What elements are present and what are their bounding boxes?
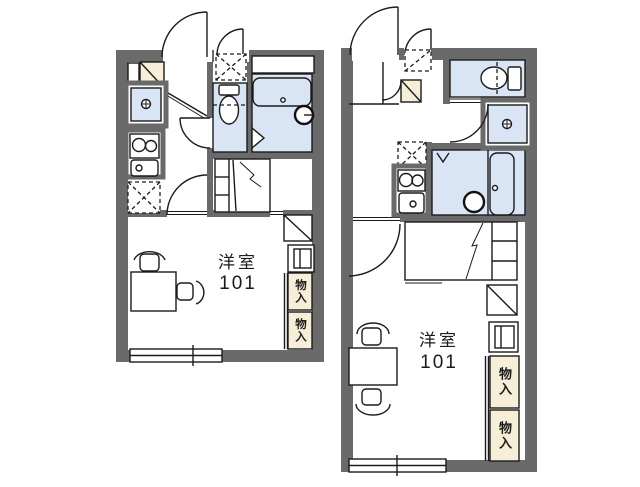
- utility-door-icon: [405, 29, 431, 71]
- left-closet-label-2: 物入: [288, 313, 312, 348]
- left-room-label: 洋室: [203, 254, 273, 272]
- desk-icon: [349, 348, 397, 385]
- bed-icon: [215, 159, 270, 212]
- floorplan-canvas: 洋室 101 物入 物入 洋室 101 物入 物入: [0, 0, 640, 487]
- shelf-icon: [288, 245, 314, 272]
- bed-icon: [405, 222, 517, 283]
- desk-icon: [131, 272, 176, 311]
- right-room-number: 101: [404, 353, 474, 373]
- refrigerator-space-icon: [126, 83, 166, 126]
- washing-machine-space-icon: [128, 182, 160, 213]
- right-closet-label-2: 物入: [490, 412, 519, 459]
- right-room-label: 洋室: [404, 332, 474, 350]
- shelf-icon: [489, 322, 518, 352]
- refrigerator-space-icon: [483, 100, 532, 148]
- floorplan-drawing: [0, 0, 640, 487]
- upper-cabinet-icon: [284, 215, 312, 241]
- kitchen-icon: [126, 130, 163, 177]
- upper-cabinet-icon: [487, 285, 517, 315]
- right-closet-label-1: 物入: [490, 358, 519, 406]
- outdoor-washer-space-icon: [216, 54, 246, 80]
- left-closet-label-1: 物入: [288, 274, 312, 309]
- kitchen-icon: [394, 166, 428, 215]
- bath-window: [252, 56, 314, 73]
- left-room-number: 101: [203, 274, 273, 294]
